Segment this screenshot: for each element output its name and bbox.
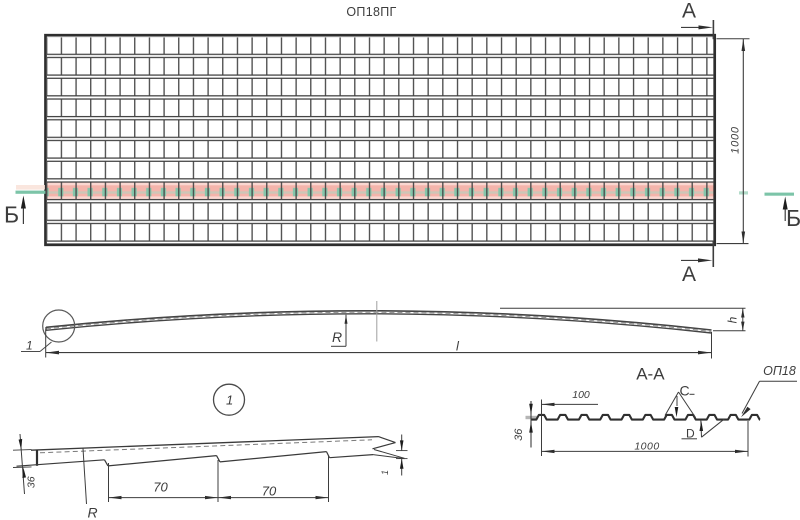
svg-text:ОП18ПГ: ОП18ПГ	[346, 5, 396, 19]
svg-text:R: R	[332, 329, 342, 345]
svg-text:А-А: А-А	[636, 365, 665, 384]
svg-text:1: 1	[380, 470, 390, 475]
svg-text:R: R	[88, 505, 98, 520]
svg-text:Б: Б	[786, 205, 800, 231]
svg-text:1000: 1000	[634, 441, 659, 453]
svg-text:100: 100	[572, 389, 590, 401]
svg-text:l: l	[456, 339, 460, 354]
svg-text:1000: 1000	[729, 126, 741, 154]
svg-text:70: 70	[153, 480, 168, 495]
svg-text:Б: Б	[4, 202, 19, 228]
svg-text:1: 1	[226, 393, 233, 408]
svg-text:ОП18: ОП18	[763, 364, 796, 378]
svg-text:36: 36	[513, 428, 525, 441]
svg-text:D: D	[686, 426, 695, 440]
svg-text:h: h	[726, 316, 740, 323]
svg-text:1: 1	[26, 339, 33, 353]
svg-text:70: 70	[262, 484, 277, 499]
svg-text:36: 36	[25, 476, 37, 488]
svg-text:А: А	[682, 263, 696, 286]
svg-text:А: А	[682, 0, 696, 23]
